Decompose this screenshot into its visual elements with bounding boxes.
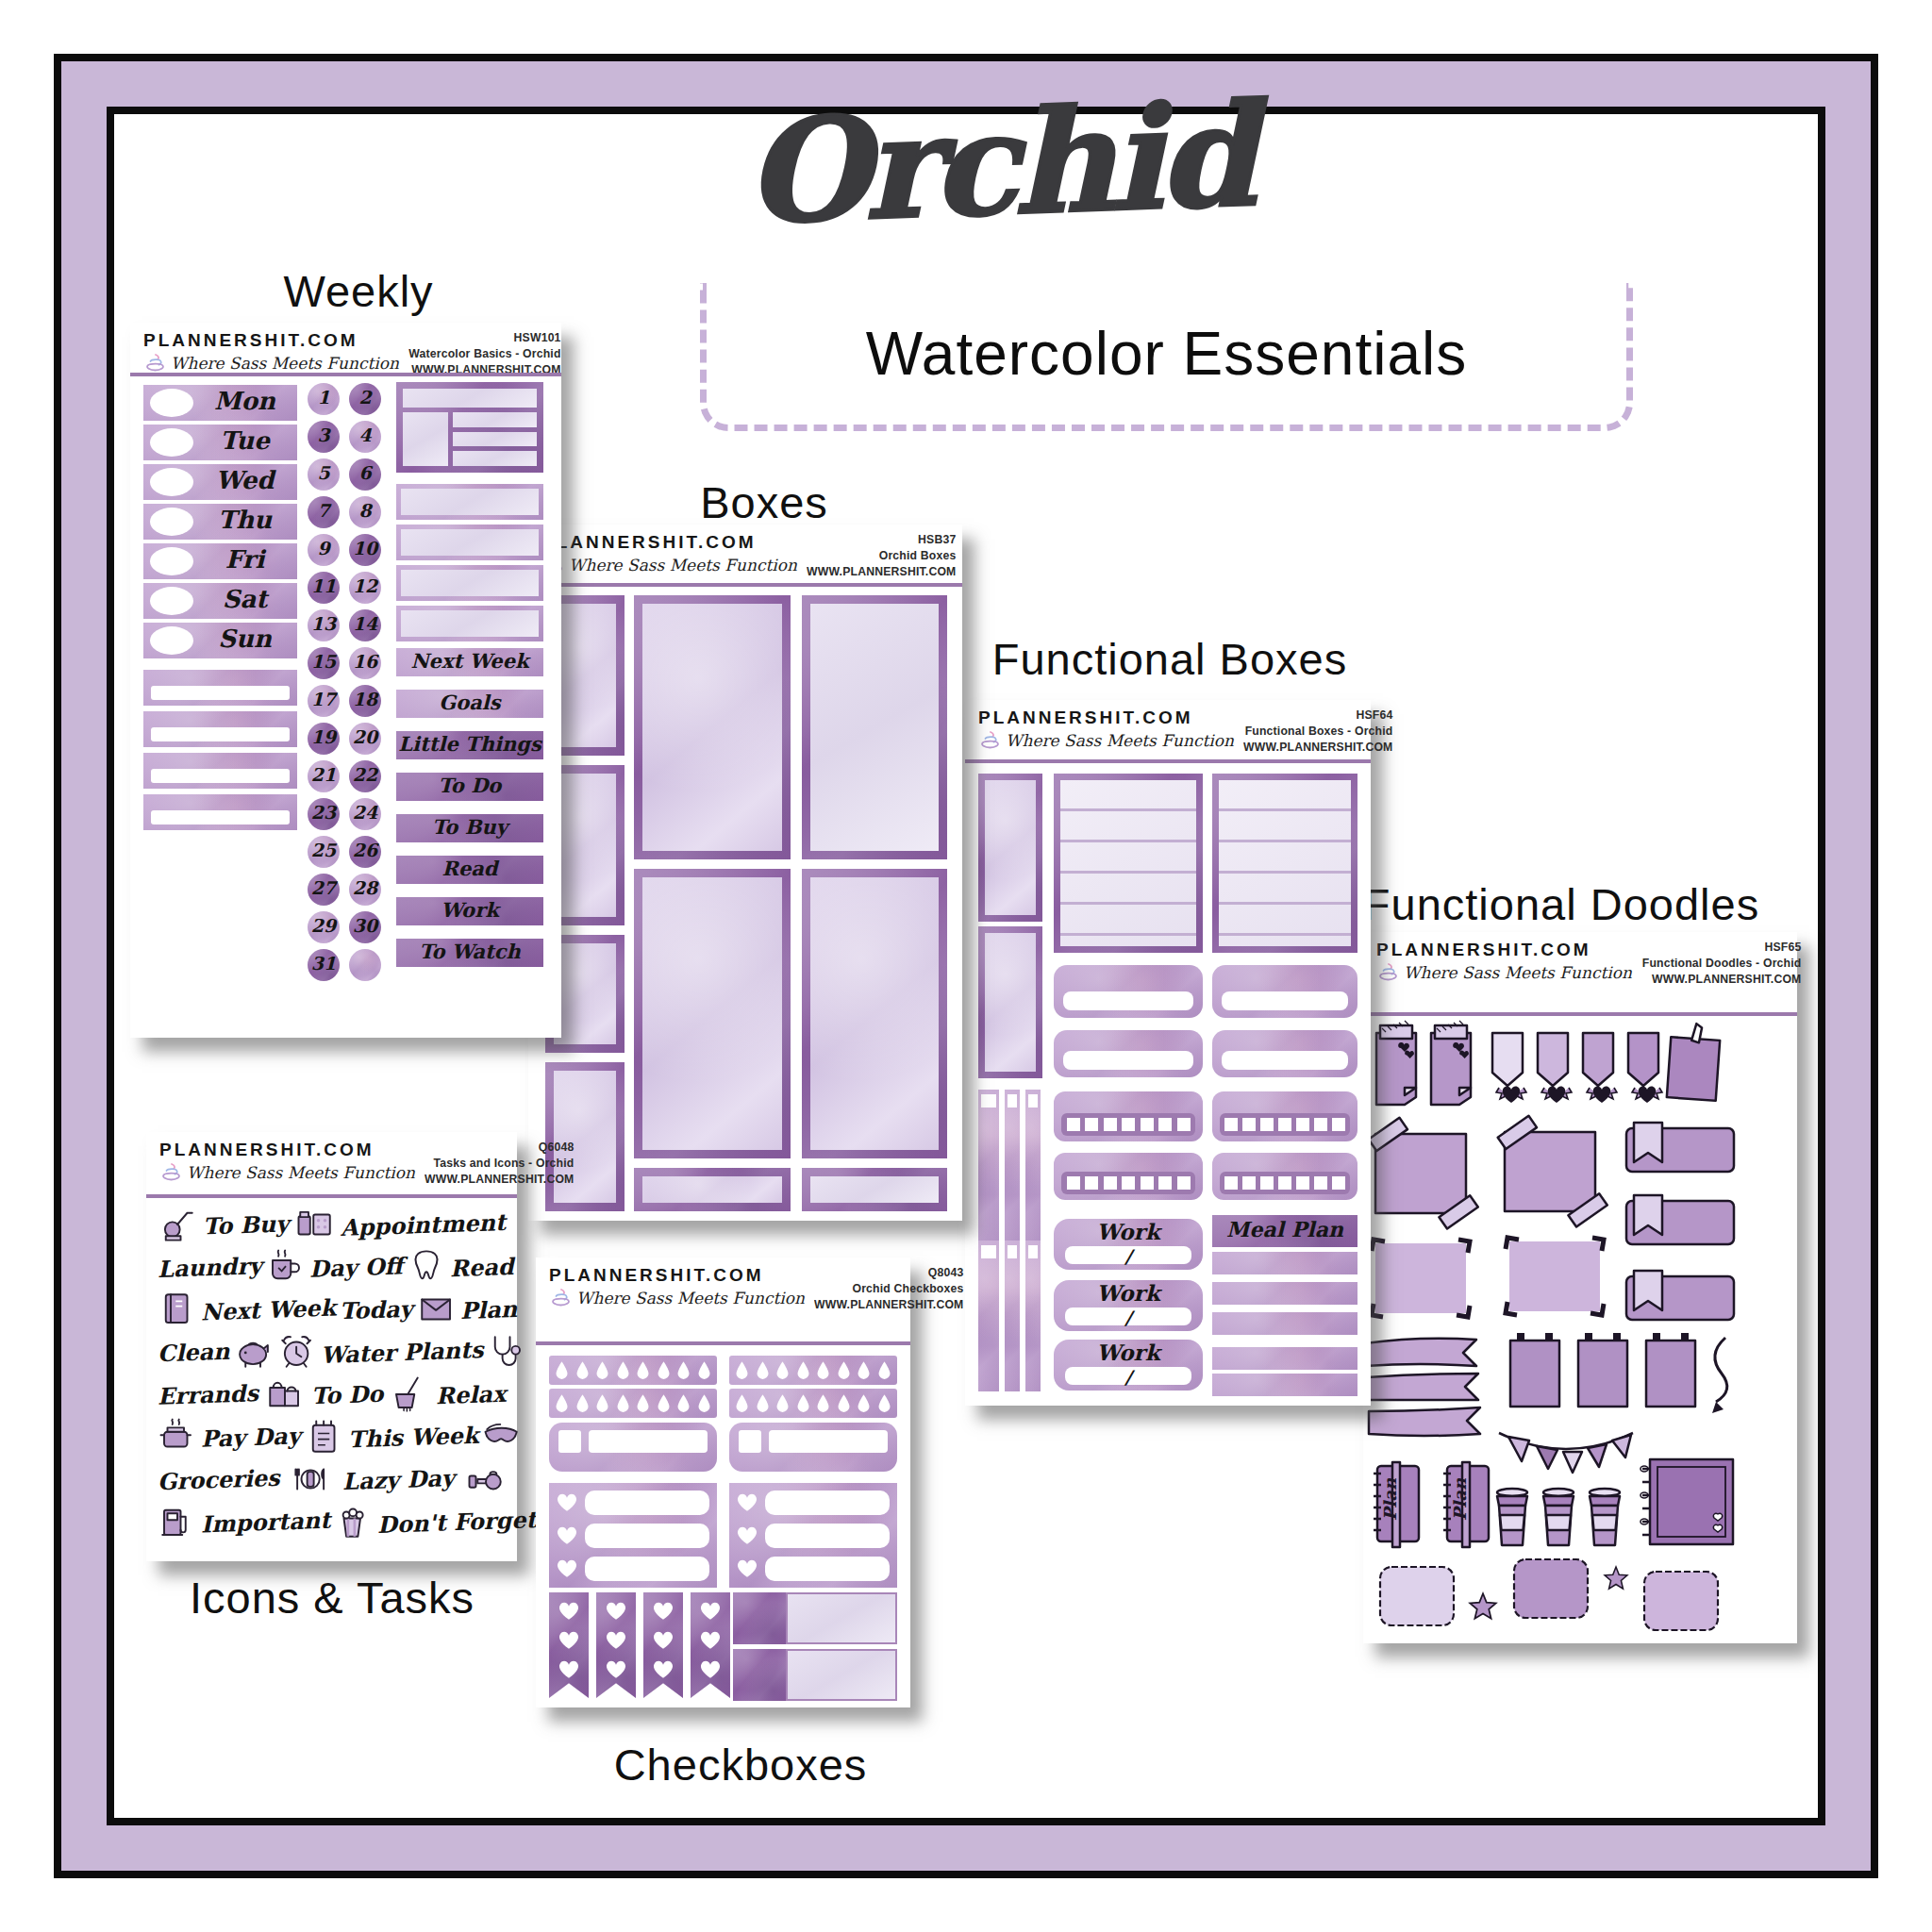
habit-checkbox-cell — [1242, 1118, 1256, 1131]
day-header-sticker: Fri — [143, 543, 297, 579]
watercolor-box-sticker — [545, 1062, 625, 1211]
droplet-cutout — [657, 1360, 671, 1380]
habit-checkbox-band — [1061, 1113, 1195, 1136]
droplet-cutout — [616, 1360, 630, 1380]
sticker-sheet-weekly: PLANNERSHIT.COMWhere Sass Meets Function… — [130, 323, 561, 1038]
work-label-sticker: Work/ — [1054, 1280, 1203, 1331]
task-label: Lazy Day — [342, 1463, 456, 1494]
date-dot — [349, 949, 381, 981]
grid-lower — [403, 412, 537, 466]
strip-box-sticker — [1054, 965, 1203, 1018]
date-number: 18 — [349, 689, 381, 709]
date-dot: 26 — [349, 836, 381, 868]
heart-cutout — [735, 1557, 759, 1579]
write-in-sticker — [143, 753, 297, 789]
bookmark-strip-window — [1008, 1094, 1017, 1108]
watercolor-box-sticker — [634, 869, 791, 1158]
habit-checkbox-cell — [1067, 1118, 1080, 1131]
heart-row-line — [585, 1491, 709, 1515]
watercolor-box-inner — [554, 943, 616, 1044]
droplet-cutout — [595, 1393, 609, 1413]
pinned-note-doodle — [1663, 1022, 1724, 1107]
shopping-bags-icon — [265, 1374, 305, 1414]
ribbon-banner-doodle — [1367, 1406, 1482, 1436]
bookmark-strip-window — [981, 1245, 996, 1258]
habit-checkbox-cell — [1332, 1118, 1345, 1131]
day-header-sticker: Tue — [143, 425, 297, 460]
work-label-text: Work — [1054, 1219, 1203, 1244]
droplet-cutout — [756, 1360, 770, 1380]
date-number: 14 — [349, 613, 381, 634]
watercolor-box-inner — [810, 604, 939, 851]
habit-checkbox-sticker — [1212, 1091, 1357, 1141]
grid-row-strip — [453, 432, 537, 447]
heart-row-line — [765, 1491, 890, 1515]
watercolor-box-inner — [554, 774, 616, 917]
heart-checklist-sticker — [729, 1483, 897, 1588]
caption-functional-boxes: Functional Boxes — [962, 633, 1377, 685]
habit-checkbox-cell — [1122, 1176, 1135, 1190]
watercolor-box-inner — [810, 1176, 939, 1203]
meal-plan-text: Meal Plan — [1212, 1217, 1357, 1241]
habit-checkbox-cell — [1278, 1118, 1291, 1131]
day-label: Mon — [196, 387, 293, 415]
droplet-strip-sticker — [729, 1389, 897, 1418]
checkbox-line — [589, 1430, 708, 1453]
heading-label-text: To Watch — [396, 940, 543, 963]
strip-box-field — [1063, 1051, 1193, 1070]
droplet-cutout — [575, 1360, 590, 1380]
strip-box-field — [1222, 1051, 1348, 1070]
droplet-cutout — [636, 1393, 650, 1413]
cooking-pot-icon — [158, 1417, 197, 1457]
date-number: 26 — [349, 840, 381, 860]
heart-cutout — [604, 1628, 628, 1651]
date-number: 21 — [308, 764, 340, 785]
work-label-sticker: Work/ — [1054, 1219, 1203, 1270]
date-number: 12 — [349, 575, 381, 596]
date-number: 4 — [349, 425, 381, 445]
day-label: Sat — [196, 585, 293, 613]
heading-label-sticker: Little Things — [396, 731, 543, 759]
date-number: 16 — [349, 651, 381, 672]
droplet-cutout — [816, 1393, 830, 1413]
date-dot: 6 — [349, 458, 381, 491]
day-circle — [150, 547, 193, 575]
write-in-sticker — [143, 670, 297, 706]
icon-task-row: Next WeekTodayPlan — [158, 1289, 506, 1330]
subtitle-box: Watercolor Essentials — [700, 283, 1633, 431]
droplet-cutout — [775, 1393, 790, 1413]
two-tone-dark — [733, 1649, 786, 1701]
two-tone-light — [786, 1592, 897, 1644]
heart-row-line — [765, 1524, 890, 1548]
framed-box-inner — [1060, 780, 1196, 946]
bookmark-strip-sticker — [978, 1090, 999, 1241]
framed-box-sticker — [1054, 774, 1203, 953]
day-circle — [150, 508, 193, 536]
task-label: Next Week — [201, 1293, 337, 1325]
habit-checkbox-cell — [1141, 1176, 1154, 1190]
coffee-cup-doodle — [1586, 1487, 1624, 1549]
icons-tasks-content: To BuyAppointmentLaundryDay OffReadNext … — [146, 1132, 517, 1561]
droplet-cutout — [555, 1360, 569, 1380]
caption-checkboxes: Checkboxes — [552, 1739, 929, 1790]
habit-checkbox-sticker — [1054, 1091, 1203, 1141]
place-setting-icon — [291, 1459, 331, 1499]
date-dot: 10 — [349, 534, 381, 566]
subtitle-text: Watercolor Essentials — [866, 319, 1468, 389]
date-number: 1 — [308, 387, 340, 408]
plain-box-sticker — [396, 606, 543, 641]
envelope-icon — [417, 1290, 457, 1329]
habit-checkbox-cell — [1242, 1176, 1256, 1190]
watercolor-box-sticker — [634, 1168, 791, 1211]
date-dot: 12 — [349, 572, 381, 604]
functional-doodles-content: PlanPlan — [1363, 932, 1797, 1643]
heading-label-sticker: To Buy — [396, 814, 543, 842]
droplet-cutout — [857, 1360, 871, 1380]
date-dot: 3 — [308, 421, 340, 453]
task-label: Water Plants — [320, 1335, 483, 1368]
work-label-sticker: Work/ — [1054, 1340, 1203, 1391]
habit-checkbox-cell — [1085, 1176, 1098, 1190]
droplet-cutout — [616, 1393, 630, 1413]
date-dot: 29 — [308, 911, 340, 943]
habit-checkbox-cell — [1141, 1118, 1154, 1131]
habit-checkbox-cell — [1224, 1176, 1238, 1190]
sticker-sheet-checkboxes: PLANNERSHIT.COMWhere Sass Meets Function… — [536, 1257, 910, 1707]
spiral-notebook-doodle — [1637, 1456, 1737, 1548]
date-number: 10 — [349, 538, 381, 558]
watercolor-box-sticker — [634, 595, 791, 859]
dumbbells-icon — [466, 1459, 506, 1499]
bookmark-box-doodle — [1624, 1121, 1736, 1174]
strip-box-field — [1222, 991, 1348, 1010]
task-label: Laundry — [158, 1252, 263, 1283]
watercolor-box-inner — [642, 604, 782, 851]
date-dot: 2 — [349, 383, 381, 415]
checkbox-strip-sticker — [549, 1423, 717, 1472]
habit-checkbox-cell — [1260, 1118, 1274, 1131]
checkbox-line — [769, 1430, 888, 1453]
habit-checkbox-cell — [1177, 1176, 1191, 1190]
droplet-cutout — [837, 1360, 851, 1380]
bookmark-strip-sticker — [1025, 1241, 1041, 1391]
heart-cutout — [555, 1557, 579, 1579]
droplet-cutout — [775, 1360, 790, 1380]
heart-row-line — [585, 1557, 709, 1581]
habit-checkbox-cell — [1067, 1176, 1080, 1190]
date-dot: 11 — [308, 572, 340, 604]
grid-cell — [403, 412, 448, 466]
date-number: 3 — [308, 425, 340, 445]
heart-cutout — [651, 1599, 675, 1622]
date-number: 29 — [308, 915, 340, 936]
icon-task-row: ImportantDon't Forget — [158, 1501, 506, 1542]
heart-flag-sticker — [549, 1592, 589, 1698]
sticker-sheet-functional-doodles: PLANNERSHIT.COMWhere Sass Meets Function… — [1363, 932, 1797, 1643]
habit-checkbox-band — [1061, 1172, 1195, 1194]
icon-task-row: ErrandsTo DoRelax — [158, 1374, 506, 1415]
droplet-cutout — [877, 1360, 891, 1380]
heading-label-text: Goals — [396, 691, 543, 714]
ribbon-banner-doodle — [1365, 1372, 1480, 1402]
scalloped-box-doodle — [1511, 1557, 1591, 1621]
list-strip-sticker — [1212, 1282, 1357, 1305]
caption-boxes: Boxes — [575, 476, 953, 528]
day-label: Wed — [196, 466, 293, 494]
notepad-icon — [305, 1417, 344, 1457]
heading-label-sticker: Next Week — [396, 648, 543, 676]
plain-box-inner — [401, 610, 539, 637]
strip-box-sticker — [1212, 965, 1357, 1018]
watercolor-box-inner — [810, 877, 939, 1150]
task-label: Day Off — [308, 1252, 403, 1282]
heart-checklist-sticker — [549, 1483, 717, 1588]
write-in-field — [151, 769, 290, 783]
work-slash: / — [1054, 1307, 1203, 1329]
book-icon — [158, 1290, 197, 1329]
star-doodle — [1604, 1566, 1628, 1591]
functional-boxes-content: Work/Work/Work/Meal Plan — [965, 700, 1371, 1406]
date-number: 7 — [308, 500, 340, 521]
strip-box-sticker — [1212, 1030, 1357, 1077]
date-dot: 18 — [349, 685, 381, 717]
icon-task-row: To BuyAppointment — [158, 1204, 506, 1245]
heart-cutout — [651, 1657, 675, 1680]
heart-cutout — [604, 1657, 628, 1680]
scalloped-box-doodle — [1641, 1569, 1721, 1633]
pennant-flag-doodle — [1491, 1031, 1524, 1088]
heading-label-text: To Buy — [396, 815, 543, 839]
two-tone-box-sticker — [733, 1592, 897, 1644]
heading-label-text: Little Things — [396, 732, 543, 756]
heading-label-text: Next Week — [396, 649, 543, 673]
heart-cutout — [557, 1599, 581, 1622]
svg-text:Plan: Plan — [1450, 1477, 1470, 1521]
heading-label-sticker: Goals — [396, 690, 543, 718]
date-number: 27 — [308, 877, 340, 898]
task-label: Important — [201, 1506, 331, 1538]
pennant-flag-doodle — [1626, 1031, 1660, 1088]
date-number: 9 — [308, 538, 340, 558]
date-dot: 24 — [349, 798, 381, 830]
day-header-sticker: Mon — [143, 385, 297, 421]
sticker-sheet-icons-tasks: PLANNERSHIT.COMWhere Sass Meets Function… — [146, 1132, 517, 1561]
heading-label-text: Work — [396, 898, 543, 922]
day-circle — [150, 428, 193, 457]
task-label: This Week — [347, 1421, 478, 1453]
checkbox-strip-sticker — [729, 1423, 897, 1472]
two-tone-box-sticker — [733, 1649, 897, 1701]
habit-checkbox-cell — [1278, 1176, 1291, 1190]
plan-notebook-doodle: Plan — [1436, 1460, 1494, 1550]
plain-box-sticker — [396, 565, 543, 601]
pennant-flag-doodle — [1536, 1031, 1570, 1088]
heart-flag-sticker — [691, 1592, 730, 1698]
icon-task-row: LaundryDay OffRead — [158, 1246, 506, 1288]
heart-row-line — [765, 1557, 890, 1581]
watercolor-box-inner — [554, 604, 616, 747]
habit-checkbox-cell — [1158, 1118, 1172, 1131]
date-number: 15 — [308, 651, 340, 672]
date-dot: 7 — [308, 496, 340, 528]
date-number: 20 — [349, 726, 381, 747]
bookmark-strip-sticker — [1005, 1090, 1020, 1241]
bookmark-strip-window — [1028, 1094, 1038, 1108]
day-circle — [150, 587, 193, 615]
date-dot: 14 — [349, 609, 381, 641]
arrow-doodle — [1705, 1336, 1733, 1416]
winged-heart-doodle — [1631, 1080, 1663, 1105]
task-label: Today — [340, 1294, 413, 1324]
plain-box-inner — [401, 489, 539, 515]
plain-box-inner — [401, 529, 539, 556]
droplet-strip-sticker — [729, 1356, 897, 1385]
washi-taped-box-doodle — [1497, 1121, 1603, 1220]
date-dot: 25 — [308, 836, 340, 868]
framed-box-sticker — [1212, 774, 1357, 953]
droplet-cutout — [555, 1393, 569, 1413]
date-dot: 21 — [308, 760, 340, 792]
popcorn-icon — [334, 1502, 374, 1541]
icon-task-row: Pay DayThis Week — [158, 1416, 506, 1457]
washi-taped-box-doodle — [1368, 1123, 1474, 1222]
heart-cutout — [651, 1628, 675, 1651]
heart-cutout — [698, 1657, 723, 1680]
heading-label-text: Read — [396, 857, 543, 880]
date-dot: 31 — [308, 949, 340, 981]
washi-sticky-note-doodle — [1373, 1024, 1420, 1107]
habit-checkbox-cell — [1104, 1118, 1117, 1131]
droplet-cutout — [676, 1360, 691, 1380]
date-number: 22 — [349, 764, 381, 785]
corner-frame-box-doodle — [1502, 1234, 1607, 1319]
date-number: 31 — [308, 953, 340, 974]
habit-checkbox-cell — [1224, 1118, 1238, 1131]
droplet-strip-sticker — [549, 1356, 717, 1385]
droplet-cutout — [796, 1393, 810, 1413]
heart-cutout — [555, 1491, 579, 1513]
clip-note-doodle — [1575, 1333, 1630, 1410]
bookmark-strip-sticker — [978, 1241, 999, 1391]
date-number: 24 — [349, 802, 381, 823]
heading-label-sticker: Read — [396, 856, 543, 884]
date-dot: 23 — [308, 798, 340, 830]
day-header-sticker: Sun — [143, 623, 297, 658]
icon-task-row: CleanWater Plants — [158, 1331, 506, 1373]
watercolor-box-inner — [642, 1176, 782, 1203]
date-dot: 28 — [349, 874, 381, 906]
habit-checkbox-sticker — [1054, 1153, 1203, 1200]
grid-sticker — [396, 382, 543, 473]
bookmark-strip-sticker — [1025, 1090, 1041, 1241]
day-header-sticker: Thu — [143, 504, 297, 540]
droplet-cutout — [857, 1393, 871, 1413]
framed-box-sticker — [978, 774, 1042, 922]
day-header-sticker: Sat — [143, 583, 297, 619]
date-dot: 27 — [308, 874, 340, 906]
boxes-content — [528, 525, 962, 1221]
date-number: 17 — [308, 689, 340, 709]
droplet-strip-sticker — [549, 1389, 717, 1418]
date-dot: 13 — [308, 609, 340, 641]
bookmark-box-doodle — [1624, 1193, 1736, 1246]
icon-task-row: GroceriesLazy Day — [158, 1458, 506, 1500]
bookmark-strip-sticker — [1005, 1241, 1020, 1391]
clip-note-doodle — [1643, 1333, 1698, 1410]
droplet-cutout — [657, 1393, 671, 1413]
washi-sticky-note-doodle — [1427, 1024, 1474, 1107]
watercolor-box-inner — [642, 877, 782, 1150]
write-in-field — [151, 727, 290, 741]
write-in-field — [151, 810, 290, 824]
heart-cutout — [735, 1524, 759, 1546]
heart-cutout — [557, 1628, 581, 1651]
write-in-sticker — [143, 794, 297, 830]
task-label: Appointment — [341, 1207, 507, 1241]
work-label-text: Work — [1054, 1280, 1203, 1306]
heart-cutout — [735, 1491, 759, 1513]
date-dot: 20 — [349, 723, 381, 755]
pennant-flag-doodle — [1581, 1031, 1615, 1088]
list-strip-sticker — [1212, 1374, 1357, 1396]
caption-icons-tasks: Icons & Tasks — [143, 1572, 521, 1624]
ribbon-banner-doodle — [1363, 1338, 1478, 1368]
date-number: 30 — [349, 915, 381, 936]
framed-box-inner — [1219, 780, 1351, 946]
two-tone-dark — [733, 1592, 786, 1644]
poster-canvas: Orchid Watercolor Essentials Weekly Boxe… — [0, 0, 1932, 1932]
strip-box-sticker — [1054, 1030, 1203, 1077]
gas-pump-icon — [158, 1502, 197, 1541]
date-number: 23 — [308, 802, 340, 823]
grid-row-strip — [453, 451, 537, 466]
habit-checkbox-cell — [1104, 1176, 1117, 1190]
mop-bucket-icon — [390, 1374, 429, 1414]
sticker-sheet-functional-boxes: PLANNERSHIT.COMWhere Sass Meets Function… — [965, 700, 1371, 1406]
date-number: 6 — [349, 462, 381, 483]
plan-notebook-doodle: Plan — [1366, 1460, 1424, 1550]
heart-cutout — [698, 1599, 723, 1622]
habit-checkbox-cell — [1296, 1118, 1309, 1131]
framed-box-inner — [985, 780, 1036, 915]
droplet-cutout — [816, 1360, 830, 1380]
corner-frame-box-doodle — [1368, 1236, 1474, 1321]
droplet-cutout — [595, 1360, 609, 1380]
habit-checkbox-cell — [1158, 1176, 1172, 1190]
date-dot: 22 — [349, 760, 381, 792]
date-number: 13 — [308, 613, 340, 634]
heart-cutout — [698, 1628, 723, 1651]
habit-checkbox-cell — [1314, 1118, 1327, 1131]
two-tone-light — [786, 1649, 897, 1701]
task-label: To Do — [310, 1379, 383, 1409]
list-strip-sticker — [1212, 1252, 1357, 1274]
coffee-cup-doodle — [1493, 1487, 1531, 1549]
piggy-bank-icon — [234, 1332, 274, 1372]
droplet-cutout — [697, 1360, 711, 1380]
task-label: Don't Forget — [377, 1506, 537, 1539]
task-label: Pay Day — [201, 1422, 302, 1453]
heart-cutout — [557, 1657, 581, 1680]
task-label: Errands — [158, 1379, 259, 1410]
habit-checkbox-sticker — [1212, 1153, 1357, 1200]
work-slash: / — [1054, 1366, 1203, 1389]
day-circle — [150, 626, 193, 655]
habit-checkbox-cell — [1122, 1118, 1135, 1131]
